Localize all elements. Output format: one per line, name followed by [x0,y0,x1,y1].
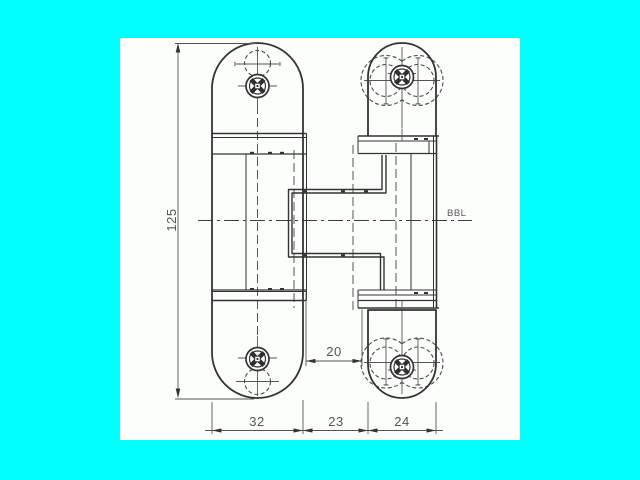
drawing-canvas: 125 20 32 23 24 BBL [120,38,520,440]
dimension-bottom-chain: 32 23 24 [205,400,443,434]
dimension-offset: 20 [306,293,362,366]
screw-top-right-icon [391,66,414,89]
dim-label-offset: 20 [326,344,341,359]
screw-top-left-icon [246,75,269,98]
desktop-background: { "drawing": { "dimensions": { "height":… [0,0,640,480]
dim-label-height: 125 [164,208,179,231]
dim-label-frame-leaf-width: 24 [394,414,409,429]
screw-bottom-left-icon [246,348,269,371]
drill-hole-circles [245,51,444,395]
dim-label-gap: 23 [328,414,343,429]
hinge-technical-drawing: 125 20 32 23 24 BBL [120,38,520,440]
section-tick-marks [250,138,428,294]
dim-label-leaf-width: 32 [249,414,264,429]
bbl-reference-label: BBL [447,208,466,219]
screw-bottom-right-icon [391,356,414,379]
